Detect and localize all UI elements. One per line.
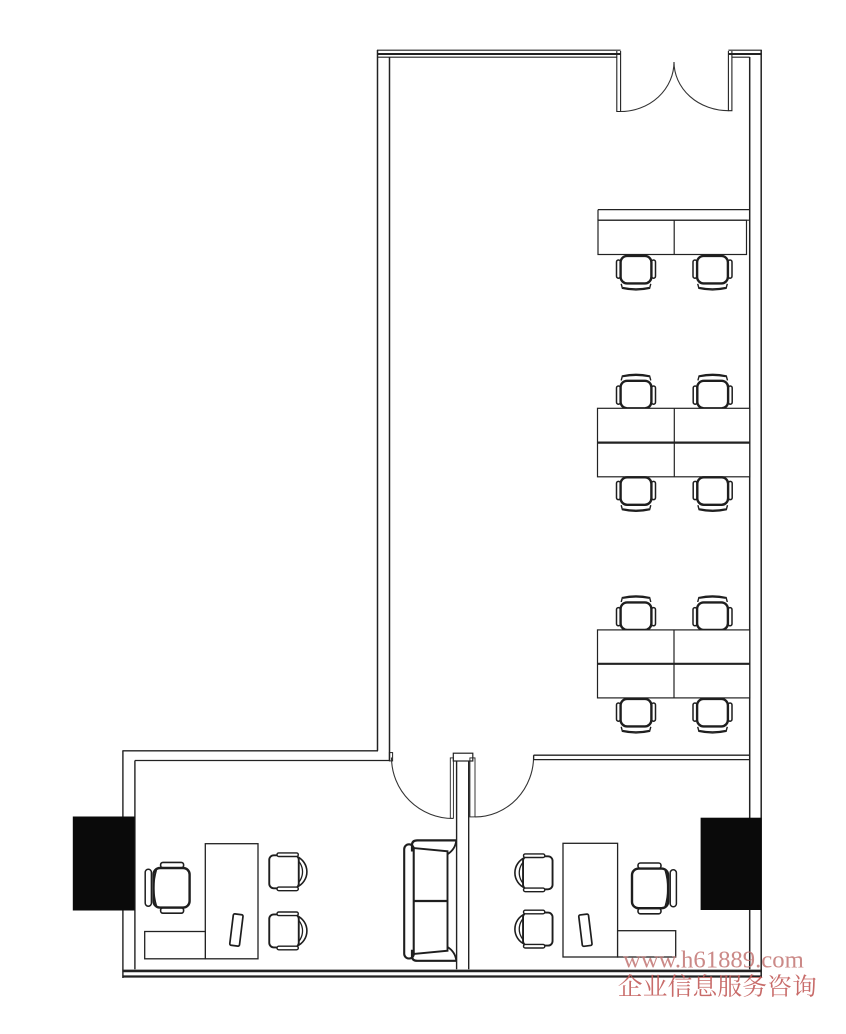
- svg-text:www.h61889.com: www.h61889.com: [623, 947, 804, 974]
